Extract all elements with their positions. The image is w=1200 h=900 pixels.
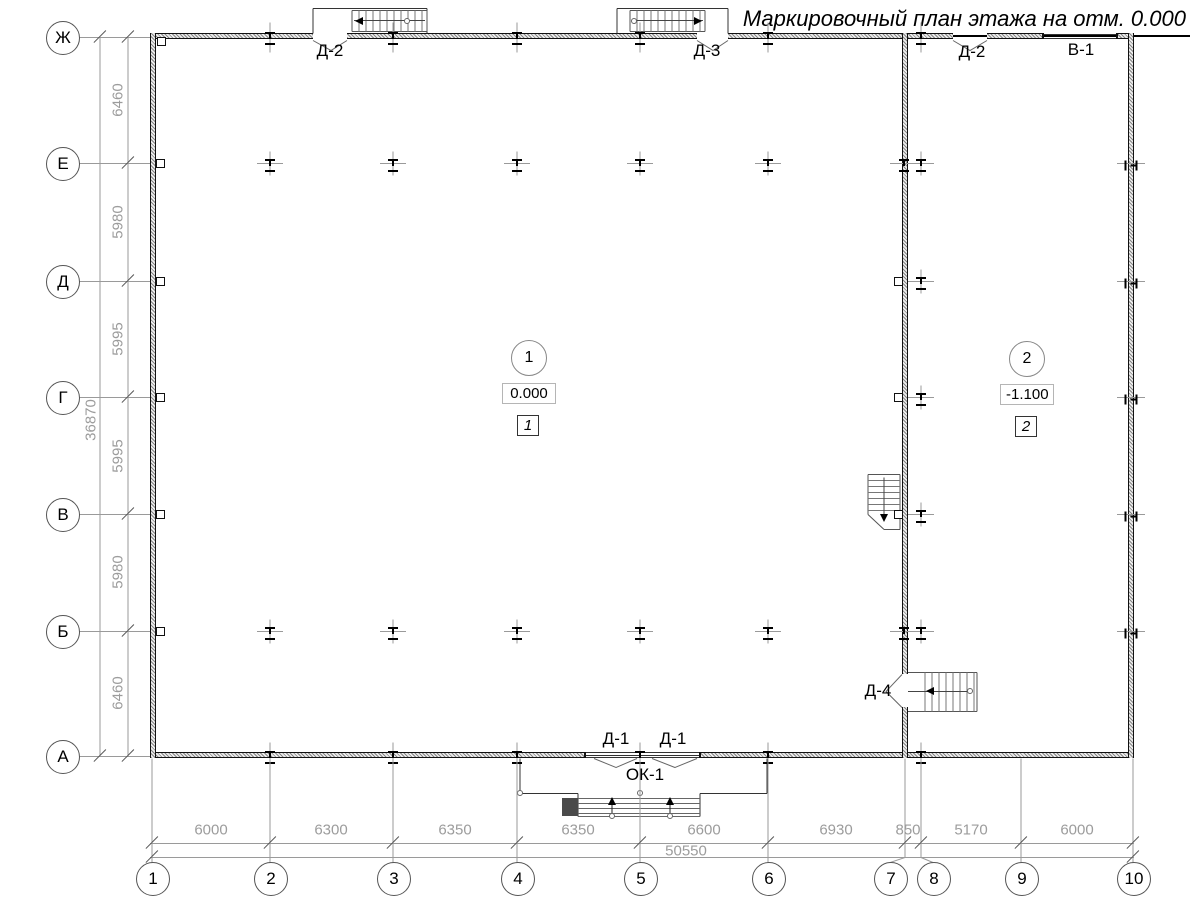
column-ibeam [635, 627, 645, 640]
dim-text-bottom: 6000 [1060, 822, 1093, 839]
dim-text-bottom: 6930 [819, 822, 852, 839]
opening-label-top_mid_door: Д-3 [694, 41, 721, 61]
stair-enclosure [617, 8, 618, 33]
column-ibeam [916, 510, 926, 523]
dim-text-left: 5995 [110, 439, 127, 472]
axis-bubble-col: 4 [501, 862, 535, 896]
wall-pilaster [156, 510, 165, 519]
room-number-bubble: 1 [511, 340, 547, 376]
axis-bubble-row: Е [46, 147, 80, 181]
opening-label-gate: В-1 [1068, 40, 1094, 60]
axis-bubble-col: 2 [254, 862, 288, 896]
stair-outline [884, 529, 900, 530]
dim-line-bottom-total [150, 857, 1134, 858]
column-ibeam [1125, 394, 1138, 404]
column-ibeam [512, 32, 522, 45]
grid-line-row [78, 756, 150, 757]
dim-text-bottom: 5170 [954, 822, 987, 839]
dim-text-bottom: 6600 [687, 822, 720, 839]
stair-outline [705, 10, 706, 31]
node-dot [631, 18, 637, 24]
stair-tread [974, 672, 975, 711]
column-ibeam [763, 32, 773, 45]
stair-tread [939, 672, 940, 711]
column-ibeam [763, 627, 773, 640]
room-tag-box: 2 [1015, 416, 1037, 437]
porch-up-arrow [608, 797, 616, 805]
stair-enclosure [728, 8, 729, 33]
grid-line-row [78, 397, 150, 398]
column-ibeam [265, 159, 275, 172]
node-dot [667, 813, 673, 819]
stair-tread [960, 672, 961, 711]
stair-enclosure [617, 8, 728, 9]
column-ibeam [1125, 160, 1138, 170]
stair-direction-arrow [355, 17, 363, 25]
column-ibeam [899, 159, 909, 172]
grid-line-row [78, 37, 150, 38]
column-ibeam [388, 32, 398, 45]
node-dot [404, 18, 410, 24]
porch-outline [700, 793, 767, 794]
stair-enclosure [313, 8, 427, 9]
column-ibeam [635, 32, 645, 45]
floor-plan-sheet: Маркировочный план этажа на отм. 0.000 Ж… [0, 0, 1200, 900]
axis-bubble-row: Д [46, 265, 80, 299]
door-swing-line [675, 758, 697, 768]
column-ibeam [899, 627, 909, 640]
axis-bubble-col: 1 [136, 862, 170, 896]
wall-pilaster [157, 37, 166, 46]
dim-text-bottom: 6000 [194, 822, 227, 839]
wall-pilaster [156, 277, 165, 286]
wall-pilaster [156, 627, 165, 636]
axis-bubble-row: Б [46, 615, 80, 649]
stair-direction-arrow [926, 687, 934, 695]
opening-label-bottom_door_2: Д-1 [660, 729, 687, 749]
gate-line [1043, 38, 1117, 39]
column-ibeam [265, 627, 275, 640]
node-dot [967, 688, 973, 694]
grid-line-row [78, 281, 150, 282]
opening-label-side_door: Д-4 [865, 681, 892, 701]
stair-outline [977, 672, 978, 711]
grid-line-row [78, 514, 150, 515]
grid-line-row [78, 631, 150, 632]
stair-direction-arrow [694, 17, 702, 25]
stair-centerline [632, 20, 703, 21]
column-ibeam [265, 32, 275, 45]
dim-text-left: 5980 [110, 555, 127, 588]
opening-label-bottom_door_1: Д-1 [603, 729, 630, 749]
stair-centerline [354, 20, 425, 21]
gate-jamb [1116, 33, 1118, 39]
room-elevation-box: 0.000 [502, 383, 556, 404]
axis-bubble-col: 9 [1005, 862, 1039, 896]
stair-centerline [884, 477, 885, 519]
axis-bubble-row: Ж [46, 21, 80, 55]
axis-bubble-row: В [46, 498, 80, 532]
column-ibeam [916, 32, 926, 45]
room-number-bubble: 2 [1009, 341, 1045, 377]
column-ibeam [1125, 511, 1138, 521]
axis-bubble-col: 10 [1117, 862, 1151, 896]
door-swing-line [594, 758, 616, 768]
stair-outline [868, 474, 900, 475]
column-ibeam [388, 159, 398, 172]
dim-text-bottom: 6350 [561, 822, 594, 839]
column-ibeam [1125, 278, 1138, 288]
dim-text-left: 5995 [110, 322, 127, 355]
plan-canvas: ЖЕДГВБА123456789106460598059955995598064… [0, 0, 1200, 900]
dim-text-left-total: 36870 [83, 399, 100, 441]
column-ibeam [916, 159, 926, 172]
gate-line [1043, 34, 1117, 35]
window-jamb [584, 752, 586, 758]
stair-outline [900, 474, 901, 529]
room-tag-box: 1 [517, 415, 539, 436]
axis-bubble-col: 8 [917, 862, 951, 896]
wall-pilaster [156, 393, 165, 402]
porch-ramp [562, 798, 578, 816]
wall-pilaster [894, 277, 903, 286]
stair-tread [953, 672, 954, 711]
stair-tread [946, 672, 947, 711]
column-ibeam [1125, 628, 1138, 638]
column-ibeam [512, 627, 522, 640]
node-dot [517, 790, 523, 796]
axis-bubble-col: 5 [624, 862, 658, 896]
wall-pilaster [156, 159, 165, 168]
porch-outline [520, 793, 578, 794]
opening-label-window: ОК-1 [626, 765, 664, 785]
axis-bubble-col: 6 [752, 862, 786, 896]
column-ibeam [512, 159, 522, 172]
node-dot [609, 813, 615, 819]
axis-bubble-col: 3 [377, 862, 411, 896]
porch-up-arrow [666, 797, 674, 805]
wall-segment [150, 33, 313, 39]
column-ibeam [916, 393, 926, 406]
wall-segment [987, 33, 1043, 39]
dim-text-left: 6460 [110, 676, 127, 709]
stair-outline [427, 10, 428, 31]
wall-pilaster [894, 510, 903, 519]
grid-line-row [78, 163, 150, 164]
column-ibeam [916, 277, 926, 290]
wall-pilaster [894, 393, 903, 402]
dim-text-bottom: 6300 [314, 822, 347, 839]
gate-jamb [1042, 33, 1044, 39]
window-jamb [699, 752, 701, 758]
opening-label-top_left_door: Д-2 [317, 41, 344, 61]
axis-bubble-row: А [46, 740, 80, 774]
dim-text-bottom-total: 50550 [665, 843, 707, 860]
dim-line-left-total [100, 37, 101, 756]
stair-centerline [908, 691, 972, 692]
wall-segment [902, 33, 908, 674]
axis-bubble-row: Г [46, 381, 80, 415]
stair-outline [630, 10, 705, 11]
column-ibeam [388, 627, 398, 640]
column-ibeam [635, 159, 645, 172]
stair-outline [352, 10, 353, 31]
opening-label-top_right_door: Д-2 [959, 42, 986, 62]
dim-text-left: 5980 [110, 205, 127, 238]
axis-bubble-col: 7 [874, 862, 908, 896]
dim-text-bottom: 6350 [438, 822, 471, 839]
column-ibeam [916, 627, 926, 640]
stair-direction-arrow [880, 514, 888, 522]
stair-enclosure [313, 8, 314, 33]
stair-outline [352, 10, 427, 11]
room-elevation-box: -1.100 [1000, 384, 1054, 405]
wall-segment [902, 707, 908, 758]
dim-text-bottom: 850 [895, 822, 920, 839]
dim-line-bottom [150, 843, 1134, 844]
column-ibeam [763, 159, 773, 172]
dim-text-left: 6460 [110, 83, 127, 116]
